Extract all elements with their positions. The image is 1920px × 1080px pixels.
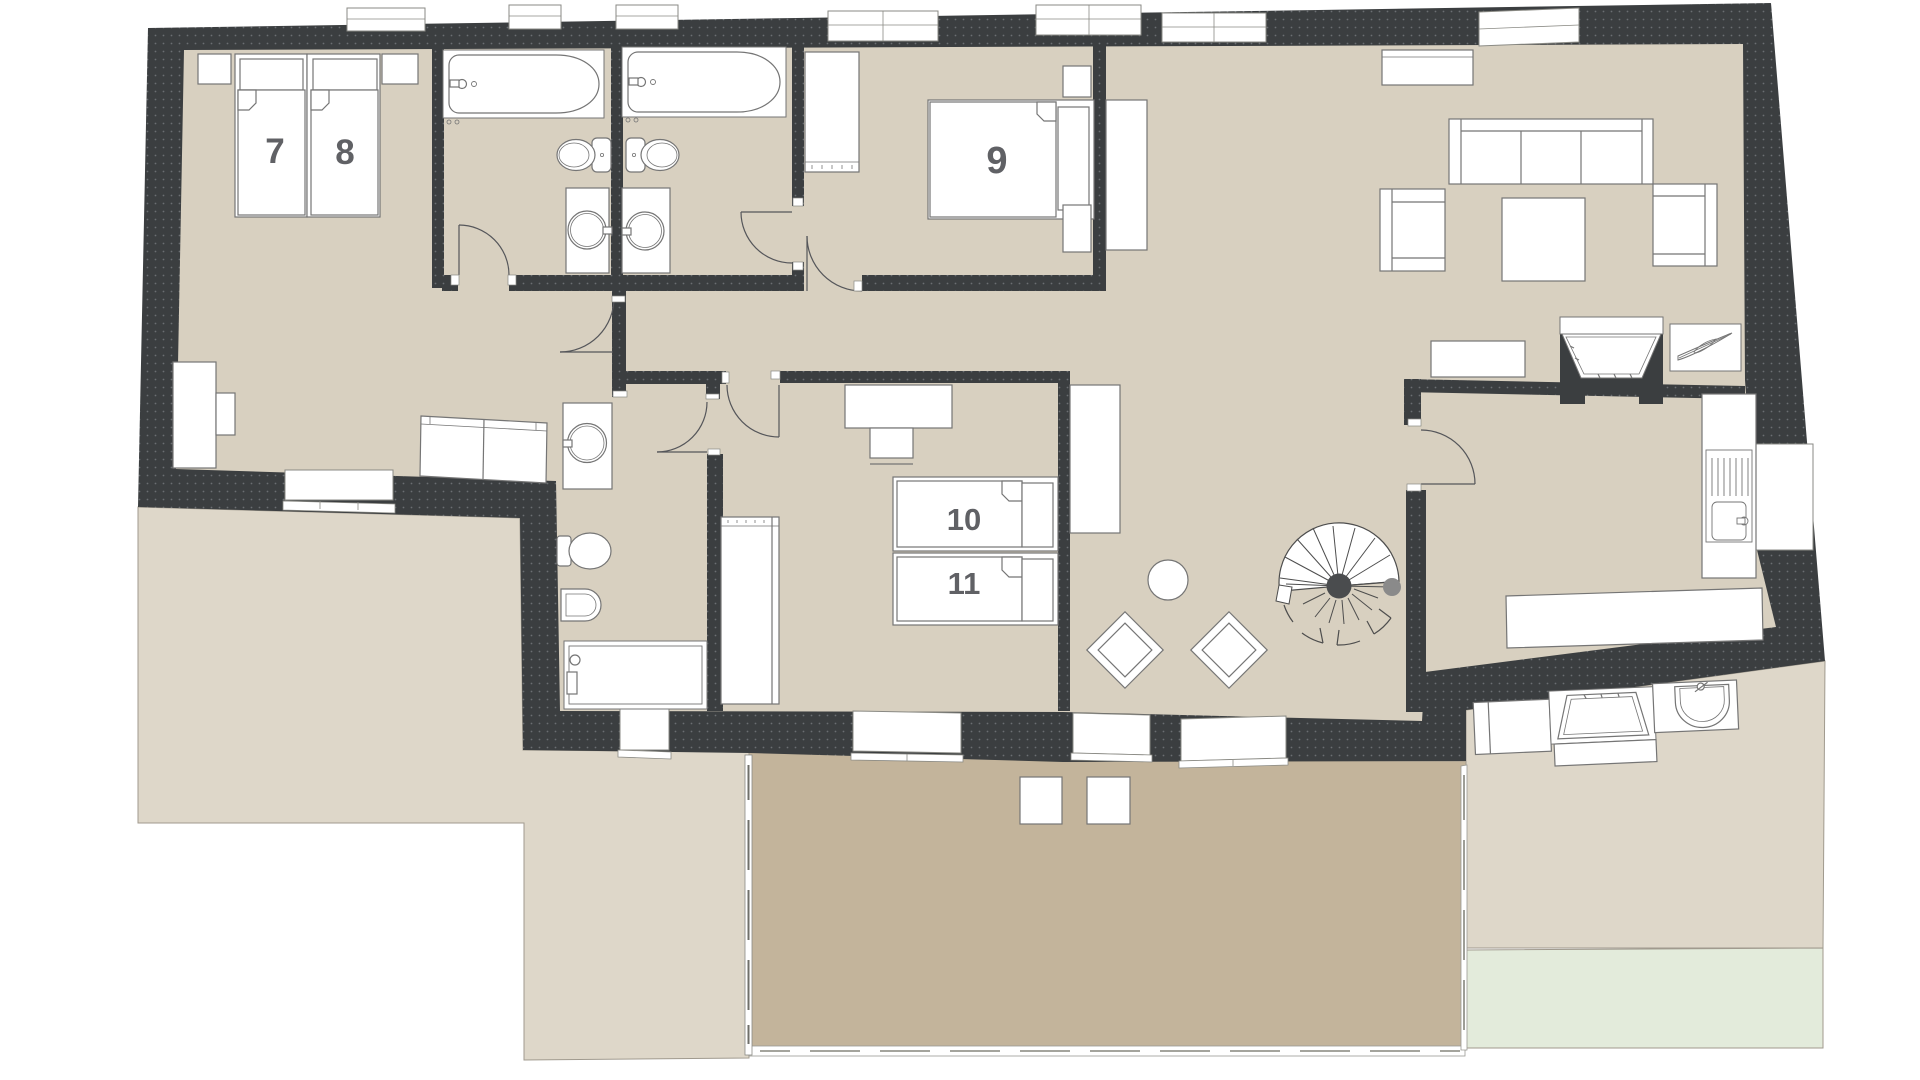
svg-text:10: 10 <box>947 502 981 537</box>
svg-text:9: 9 <box>986 140 1007 182</box>
svg-text:8: 8 <box>335 133 354 172</box>
svg-text:11: 11 <box>948 566 981 601</box>
svg-text:7: 7 <box>265 132 284 171</box>
